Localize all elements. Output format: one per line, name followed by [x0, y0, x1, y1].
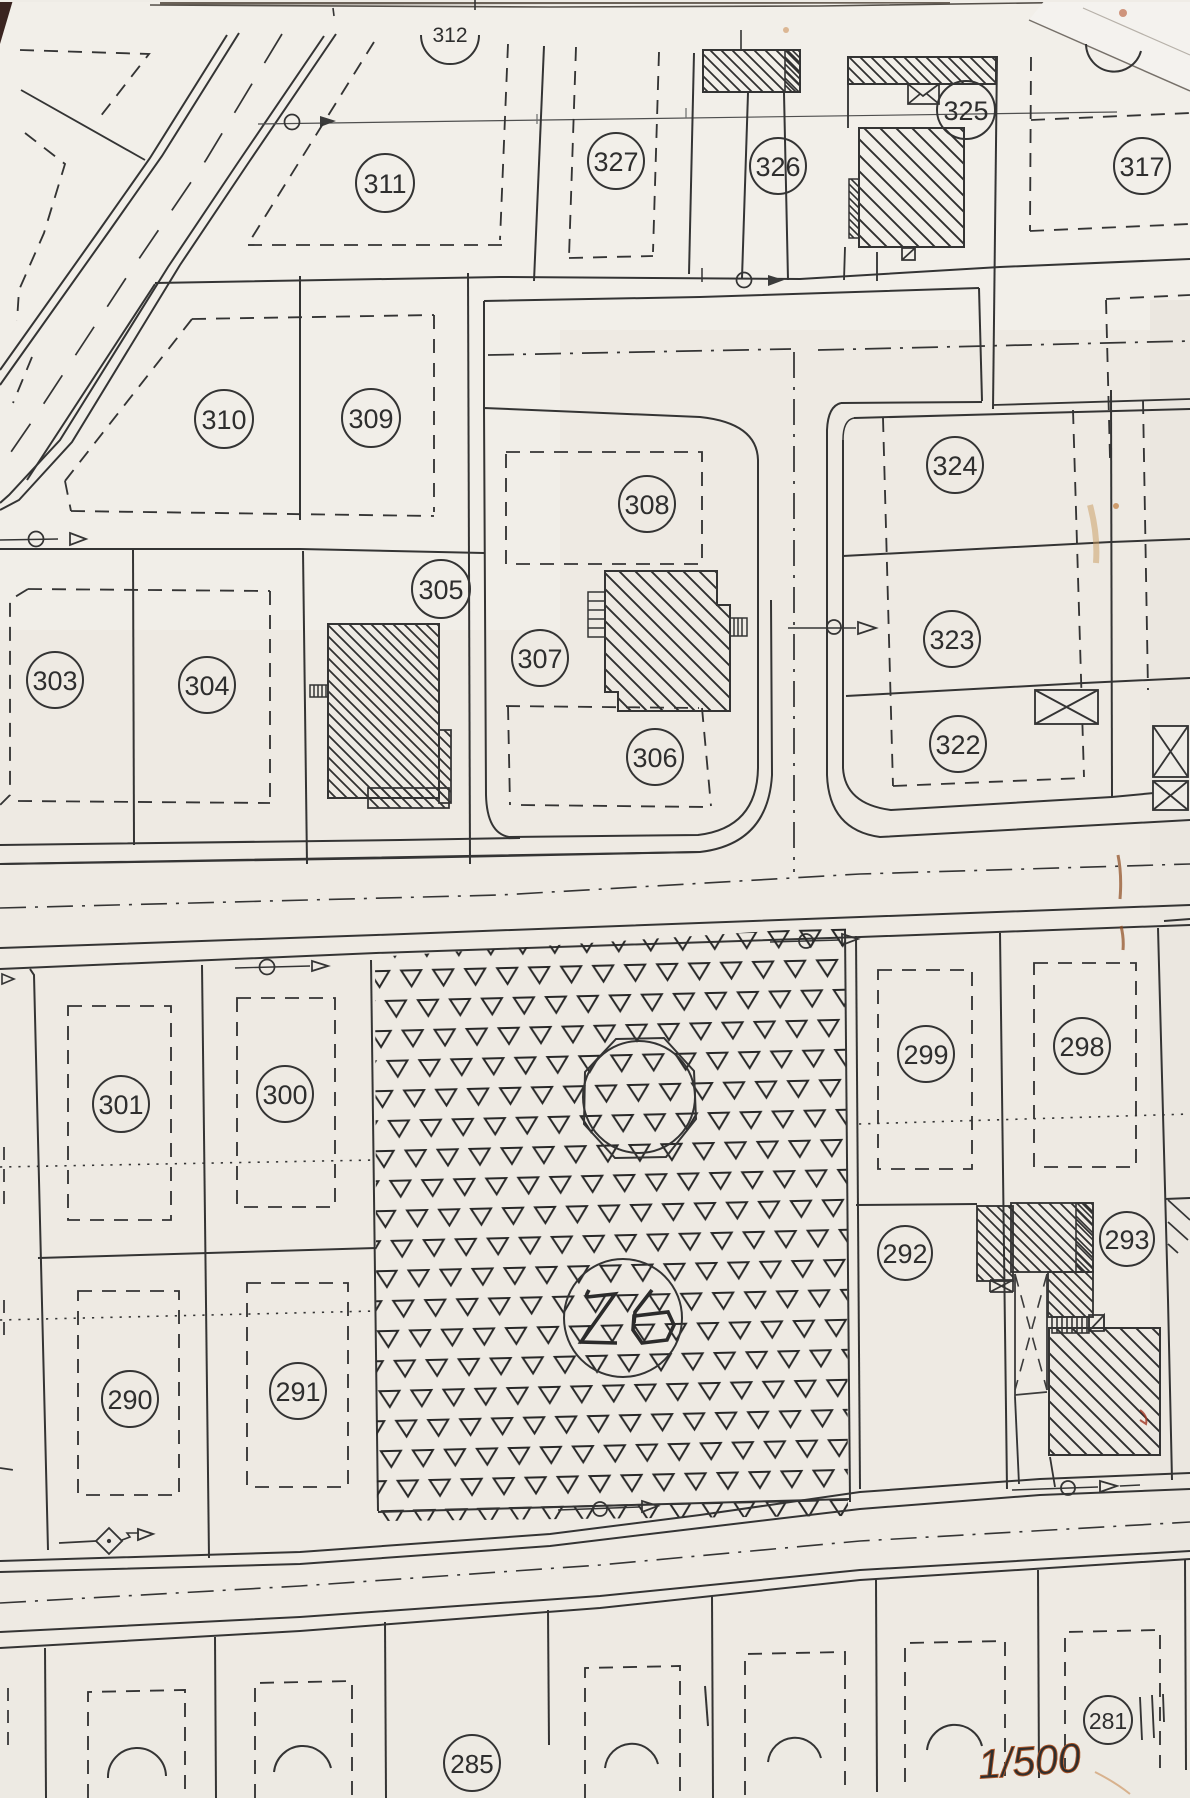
svg-text:281: 281	[1089, 1708, 1127, 1734]
svg-text:300: 300	[262, 1080, 307, 1110]
svg-text:310: 310	[201, 405, 246, 435]
svg-text:285: 285	[450, 1749, 493, 1779]
svg-text:305: 305	[418, 575, 463, 605]
svg-text:306: 306	[632, 743, 677, 773]
svg-text:298: 298	[1059, 1032, 1104, 1062]
svg-text:303: 303	[32, 666, 77, 696]
svg-text:308: 308	[624, 490, 669, 520]
svg-text:307: 307	[517, 644, 562, 674]
svg-text:299: 299	[903, 1040, 948, 1070]
svg-text:301: 301	[98, 1090, 143, 1120]
svg-text:309: 309	[348, 404, 393, 434]
svg-text:292: 292	[882, 1239, 927, 1269]
svg-text:317: 317	[1119, 152, 1164, 182]
svg-text:312: 312	[432, 24, 467, 47]
svg-text:293: 293	[1104, 1225, 1149, 1255]
svg-text:326: 326	[755, 152, 800, 182]
svg-text:322: 322	[935, 730, 980, 760]
svg-text:327: 327	[593, 147, 638, 177]
svg-text:1/500: 1/500	[977, 1735, 1083, 1788]
svg-text:325: 325	[943, 96, 988, 126]
svg-text:304: 304	[184, 671, 229, 701]
svg-text:311: 311	[363, 169, 406, 199]
svg-text:324: 324	[932, 451, 977, 481]
svg-text:323: 323	[929, 625, 974, 655]
svg-text:291: 291	[275, 1377, 320, 1407]
svg-text:290: 290	[107, 1385, 152, 1415]
